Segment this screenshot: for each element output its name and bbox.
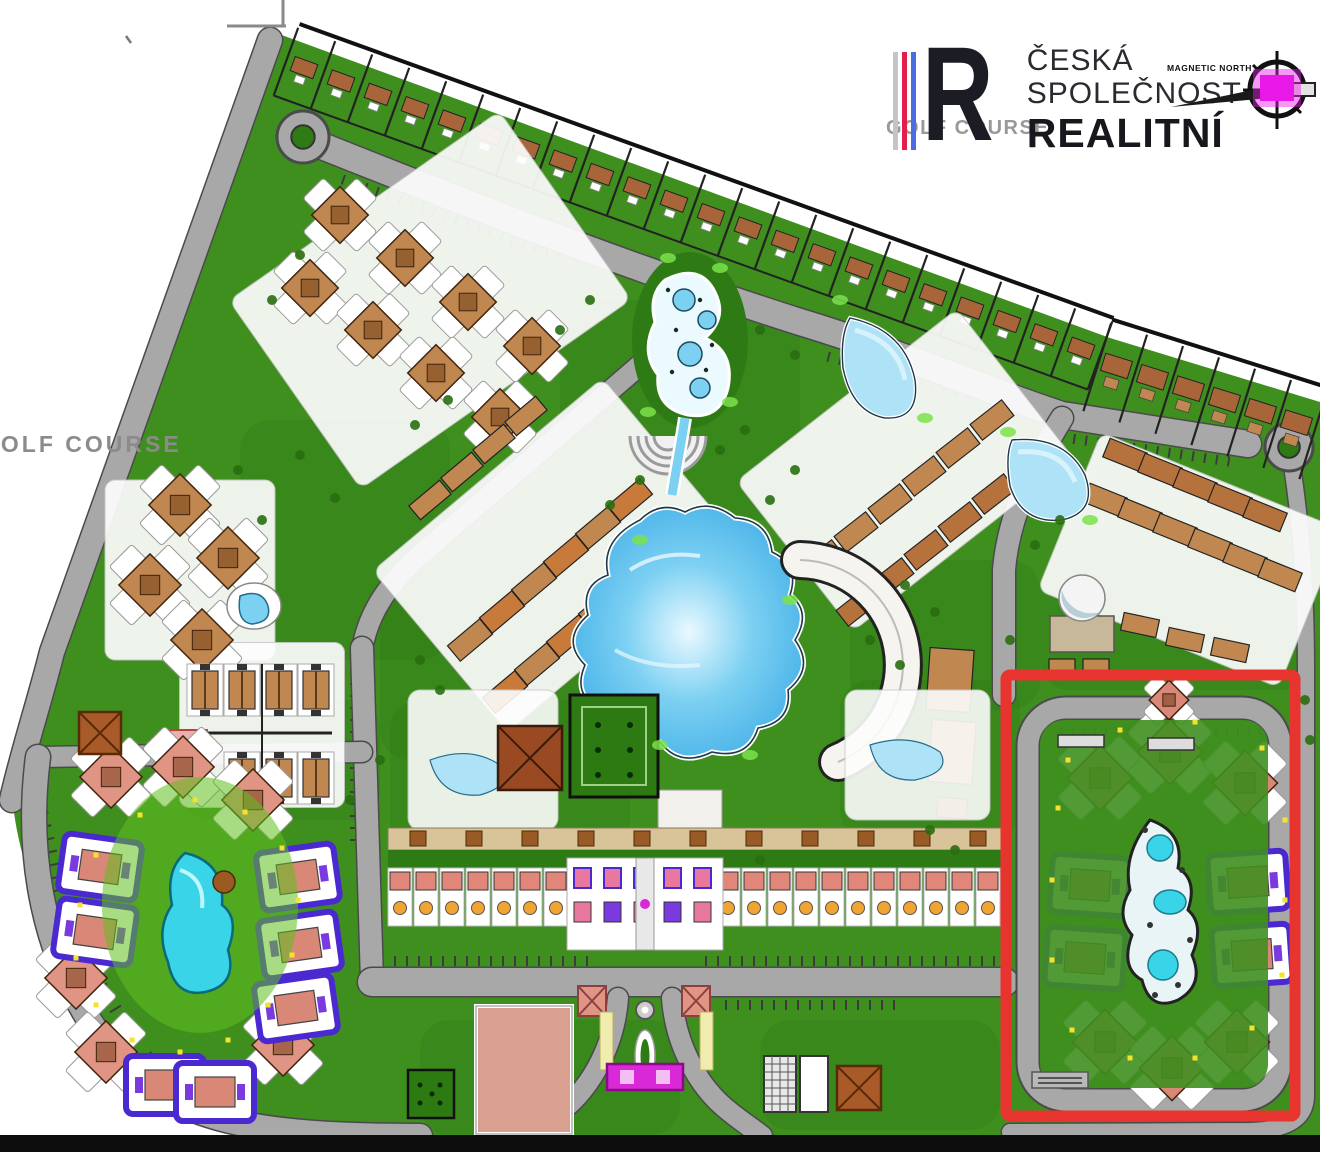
compass-label: MAGNETIC NORTH	[1167, 63, 1252, 73]
logo-letter-r: R	[922, 44, 991, 146]
logo-stripe-red	[902, 52, 907, 150]
logo-stripe-gray	[893, 52, 898, 150]
row-house	[794, 868, 818, 926]
site-plan-screenshot: GOLF COURSEGOLF COURSE R ČESKÁ SPOLEČNOS…	[0, 0, 1320, 1152]
west-pond	[227, 583, 281, 629]
apartment-block	[187, 664, 223, 716]
row-house	[924, 868, 948, 926]
row-house	[872, 868, 896, 926]
pavilion	[837, 1066, 881, 1110]
apartment-block	[224, 664, 260, 716]
logo-stripe-blue	[911, 52, 916, 150]
golf-course-label-west: GOLF COURSE	[0, 431, 182, 457]
row-house	[820, 868, 844, 926]
row-house	[414, 868, 438, 926]
apartment-block	[261, 664, 297, 716]
row-house	[518, 868, 542, 926]
row-house	[388, 868, 412, 926]
site-plan-map: GOLF COURSEGOLF COURSE	[0, 0, 1320, 1152]
east-cluster	[1032, 720, 1288, 1089]
magnetic-north-compass-icon: MAGNETIC NORTH	[1163, 45, 1320, 235]
row-house	[950, 868, 974, 926]
apartment-block	[298, 752, 334, 804]
compass-center	[1260, 75, 1294, 101]
logo-stripes-icon	[893, 52, 920, 150]
pavilion	[79, 712, 121, 754]
row-house	[898, 868, 922, 926]
apartment-block	[298, 664, 334, 716]
compass-tick	[1296, 108, 1301, 113]
row-house	[440, 868, 464, 926]
row-house	[742, 868, 766, 926]
apartment-purple	[176, 1063, 254, 1121]
row-house	[768, 868, 792, 926]
row-house	[466, 868, 490, 926]
row-house	[976, 868, 1000, 926]
row-house	[492, 868, 516, 926]
row-house	[544, 868, 568, 926]
row-house	[846, 868, 870, 926]
bottom-black-bar	[0, 1135, 1320, 1152]
